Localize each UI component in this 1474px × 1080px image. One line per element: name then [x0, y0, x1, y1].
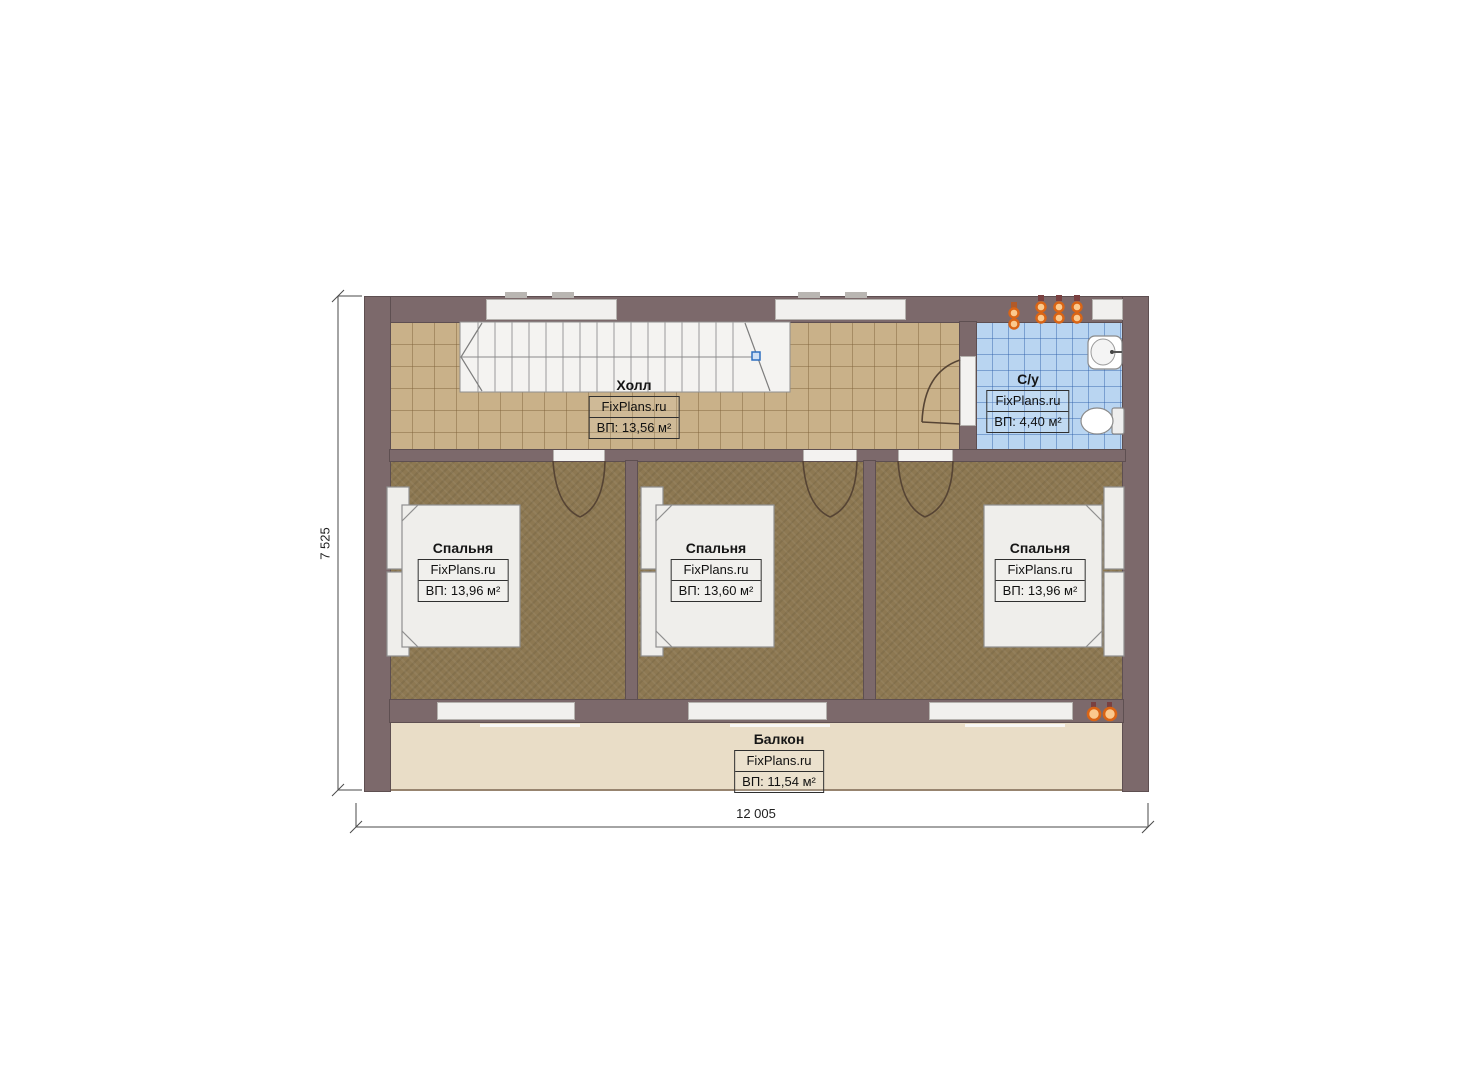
- top-exterior-wall: [365, 297, 1148, 322]
- room-name: Спальня: [418, 540, 509, 556]
- room-area: ВП: 13,56 м²: [590, 417, 679, 438]
- balcony-label: Балкон FixPlans.ru ВП: 11,54 м²: [734, 731, 824, 793]
- room-info-box: FixPlans.ru ВП: 11,54 м²: [734, 750, 824, 793]
- window-top-left: [486, 299, 617, 320]
- door-opening-bathroom: [960, 356, 976, 426]
- room-area: ВП: 13,60 м²: [672, 580, 761, 601]
- window-sill-tick: [798, 292, 820, 298]
- watermark-text: FixPlans.ru: [735, 751, 823, 771]
- dimension-horizontal-value: 12 005: [712, 806, 800, 821]
- room-area: ВП: 4,40 м²: [987, 411, 1068, 432]
- bedroom-left-label: Спальня FixPlans.ru ВП: 13,96 м²: [418, 540, 509, 602]
- balcony-sill: [965, 724, 1065, 727]
- balcony-door-middle: [688, 702, 827, 720]
- bedroom-right-label: Спальня FixPlans.ru ВП: 13,96 м²: [995, 540, 1086, 602]
- window-sill-tick: [845, 292, 867, 298]
- watermark-text: FixPlans.ru: [996, 560, 1085, 580]
- room-name: Спальня: [995, 540, 1086, 556]
- room-area: ВП: 13,96 м²: [996, 580, 1085, 601]
- right-exterior-wall: [1123, 297, 1148, 791]
- room-info-box: FixPlans.ru ВП: 13,96 м²: [418, 559, 509, 602]
- watermark-text: FixPlans.ru: [987, 391, 1068, 411]
- bedroom-partition-1: [626, 461, 637, 700]
- dimension-vertical-value: 7 525: [318, 521, 333, 567]
- watermark-text: FixPlans.ru: [672, 560, 761, 580]
- bathroom-label: С/у FixPlans.ru ВП: 4,40 м²: [986, 371, 1069, 433]
- hall-bedrooms-wall: [390, 450, 1125, 461]
- room-name: Холл: [589, 377, 680, 393]
- room-info-box: FixPlans.ru ВП: 13,96 м²: [995, 559, 1086, 602]
- balcony-door-left: [437, 702, 575, 720]
- room-name: С/у: [986, 371, 1069, 387]
- window-sill-tick: [505, 292, 527, 298]
- floor-plan-canvas: Холл FixPlans.ru ВП: 13,56 м² С/у FixPla…: [0, 0, 1474, 1080]
- room-name: Спальня: [671, 540, 762, 556]
- door-opening-bedroom-middle: [803, 450, 857, 461]
- window-bathroom: [1092, 299, 1123, 320]
- window-top-right: [775, 299, 906, 320]
- bedroom-middle-label: Спальня FixPlans.ru ВП: 13,60 м²: [671, 540, 762, 602]
- left-exterior-wall: [365, 297, 390, 791]
- room-area: ВП: 11,54 м²: [735, 771, 823, 792]
- room-info-box: FixPlans.ru ВП: 13,60 м²: [671, 559, 762, 602]
- hall-label: Холл FixPlans.ru ВП: 13,56 м²: [589, 377, 680, 439]
- balcony-door-right: [929, 702, 1073, 720]
- window-sill-tick: [552, 292, 574, 298]
- dimension-line-vertical: [332, 290, 362, 796]
- room-info-box: FixPlans.ru ВП: 13,56 м²: [589, 396, 680, 439]
- watermark-text: FixPlans.ru: [590, 397, 679, 417]
- door-opening-bedroom-left: [553, 450, 605, 461]
- balcony-sill: [480, 724, 580, 727]
- balcony-sill: [730, 724, 830, 727]
- door-opening-bedroom-right: [898, 450, 953, 461]
- bedroom-partition-2: [864, 461, 875, 700]
- room-area: ВП: 13,96 м²: [419, 580, 508, 601]
- room-name: Балкон: [734, 731, 824, 747]
- watermark-text: FixPlans.ru: [419, 560, 508, 580]
- room-info-box: FixPlans.ru ВП: 4,40 м²: [986, 390, 1069, 433]
